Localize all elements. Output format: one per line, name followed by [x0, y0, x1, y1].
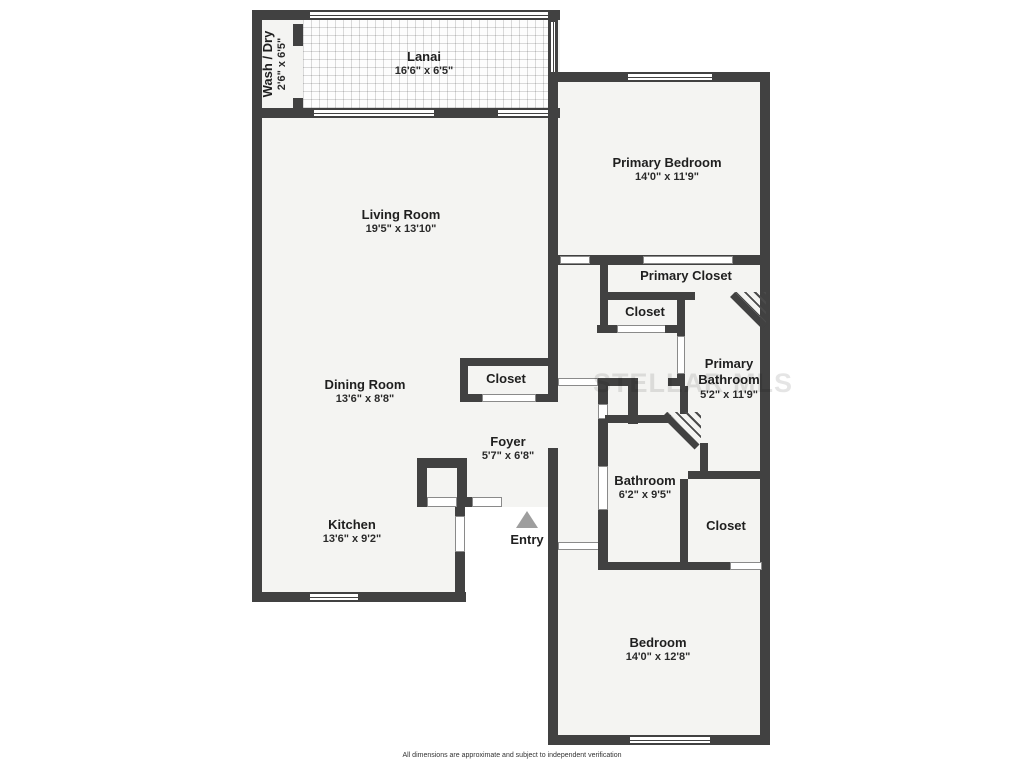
disclaimer-text: All dimensions are approximate and subje… [0, 752, 1024, 759]
wall [688, 471, 760, 479]
window [498, 108, 548, 118]
wall [680, 479, 688, 562]
wall [252, 10, 262, 602]
mls-watermark: STELLAR MLS [588, 368, 798, 399]
wall [548, 448, 558, 745]
floor-plan: Wash / Dry 2'6" x 6'5" Lanai 16'6" x 6'5… [0, 0, 1024, 768]
door-opening [558, 542, 600, 550]
wall [457, 458, 467, 497]
door-opening [482, 394, 536, 402]
window [630, 735, 710, 745]
wall [417, 497, 427, 507]
door-opening [617, 325, 667, 333]
lanai-tile-floor [303, 18, 548, 108]
window [314, 108, 434, 118]
door-opening [427, 497, 457, 507]
wall [548, 108, 558, 258]
wall [597, 325, 619, 333]
wall [460, 358, 556, 366]
door-opening [455, 516, 465, 552]
wall [690, 562, 730, 570]
wall [598, 562, 690, 570]
window [628, 72, 712, 82]
wall [536, 394, 556, 402]
door-opening [560, 256, 590, 264]
wall [252, 10, 312, 20]
window [549, 22, 557, 76]
wall [700, 443, 708, 473]
door-opening [472, 497, 502, 507]
window [310, 592, 358, 602]
wall [548, 265, 558, 360]
wall [252, 592, 466, 602]
window [310, 10, 550, 20]
right-wing-floor [548, 72, 770, 745]
wall [460, 394, 482, 402]
door-opening [598, 466, 608, 510]
wall [760, 72, 770, 745]
wall [434, 108, 498, 118]
door-opening [643, 256, 733, 264]
wall [293, 24, 303, 46]
wall [665, 325, 685, 333]
wall [252, 108, 314, 118]
wall [457, 497, 472, 507]
door-opening [730, 562, 762, 570]
entry-arrow-icon [516, 511, 538, 528]
